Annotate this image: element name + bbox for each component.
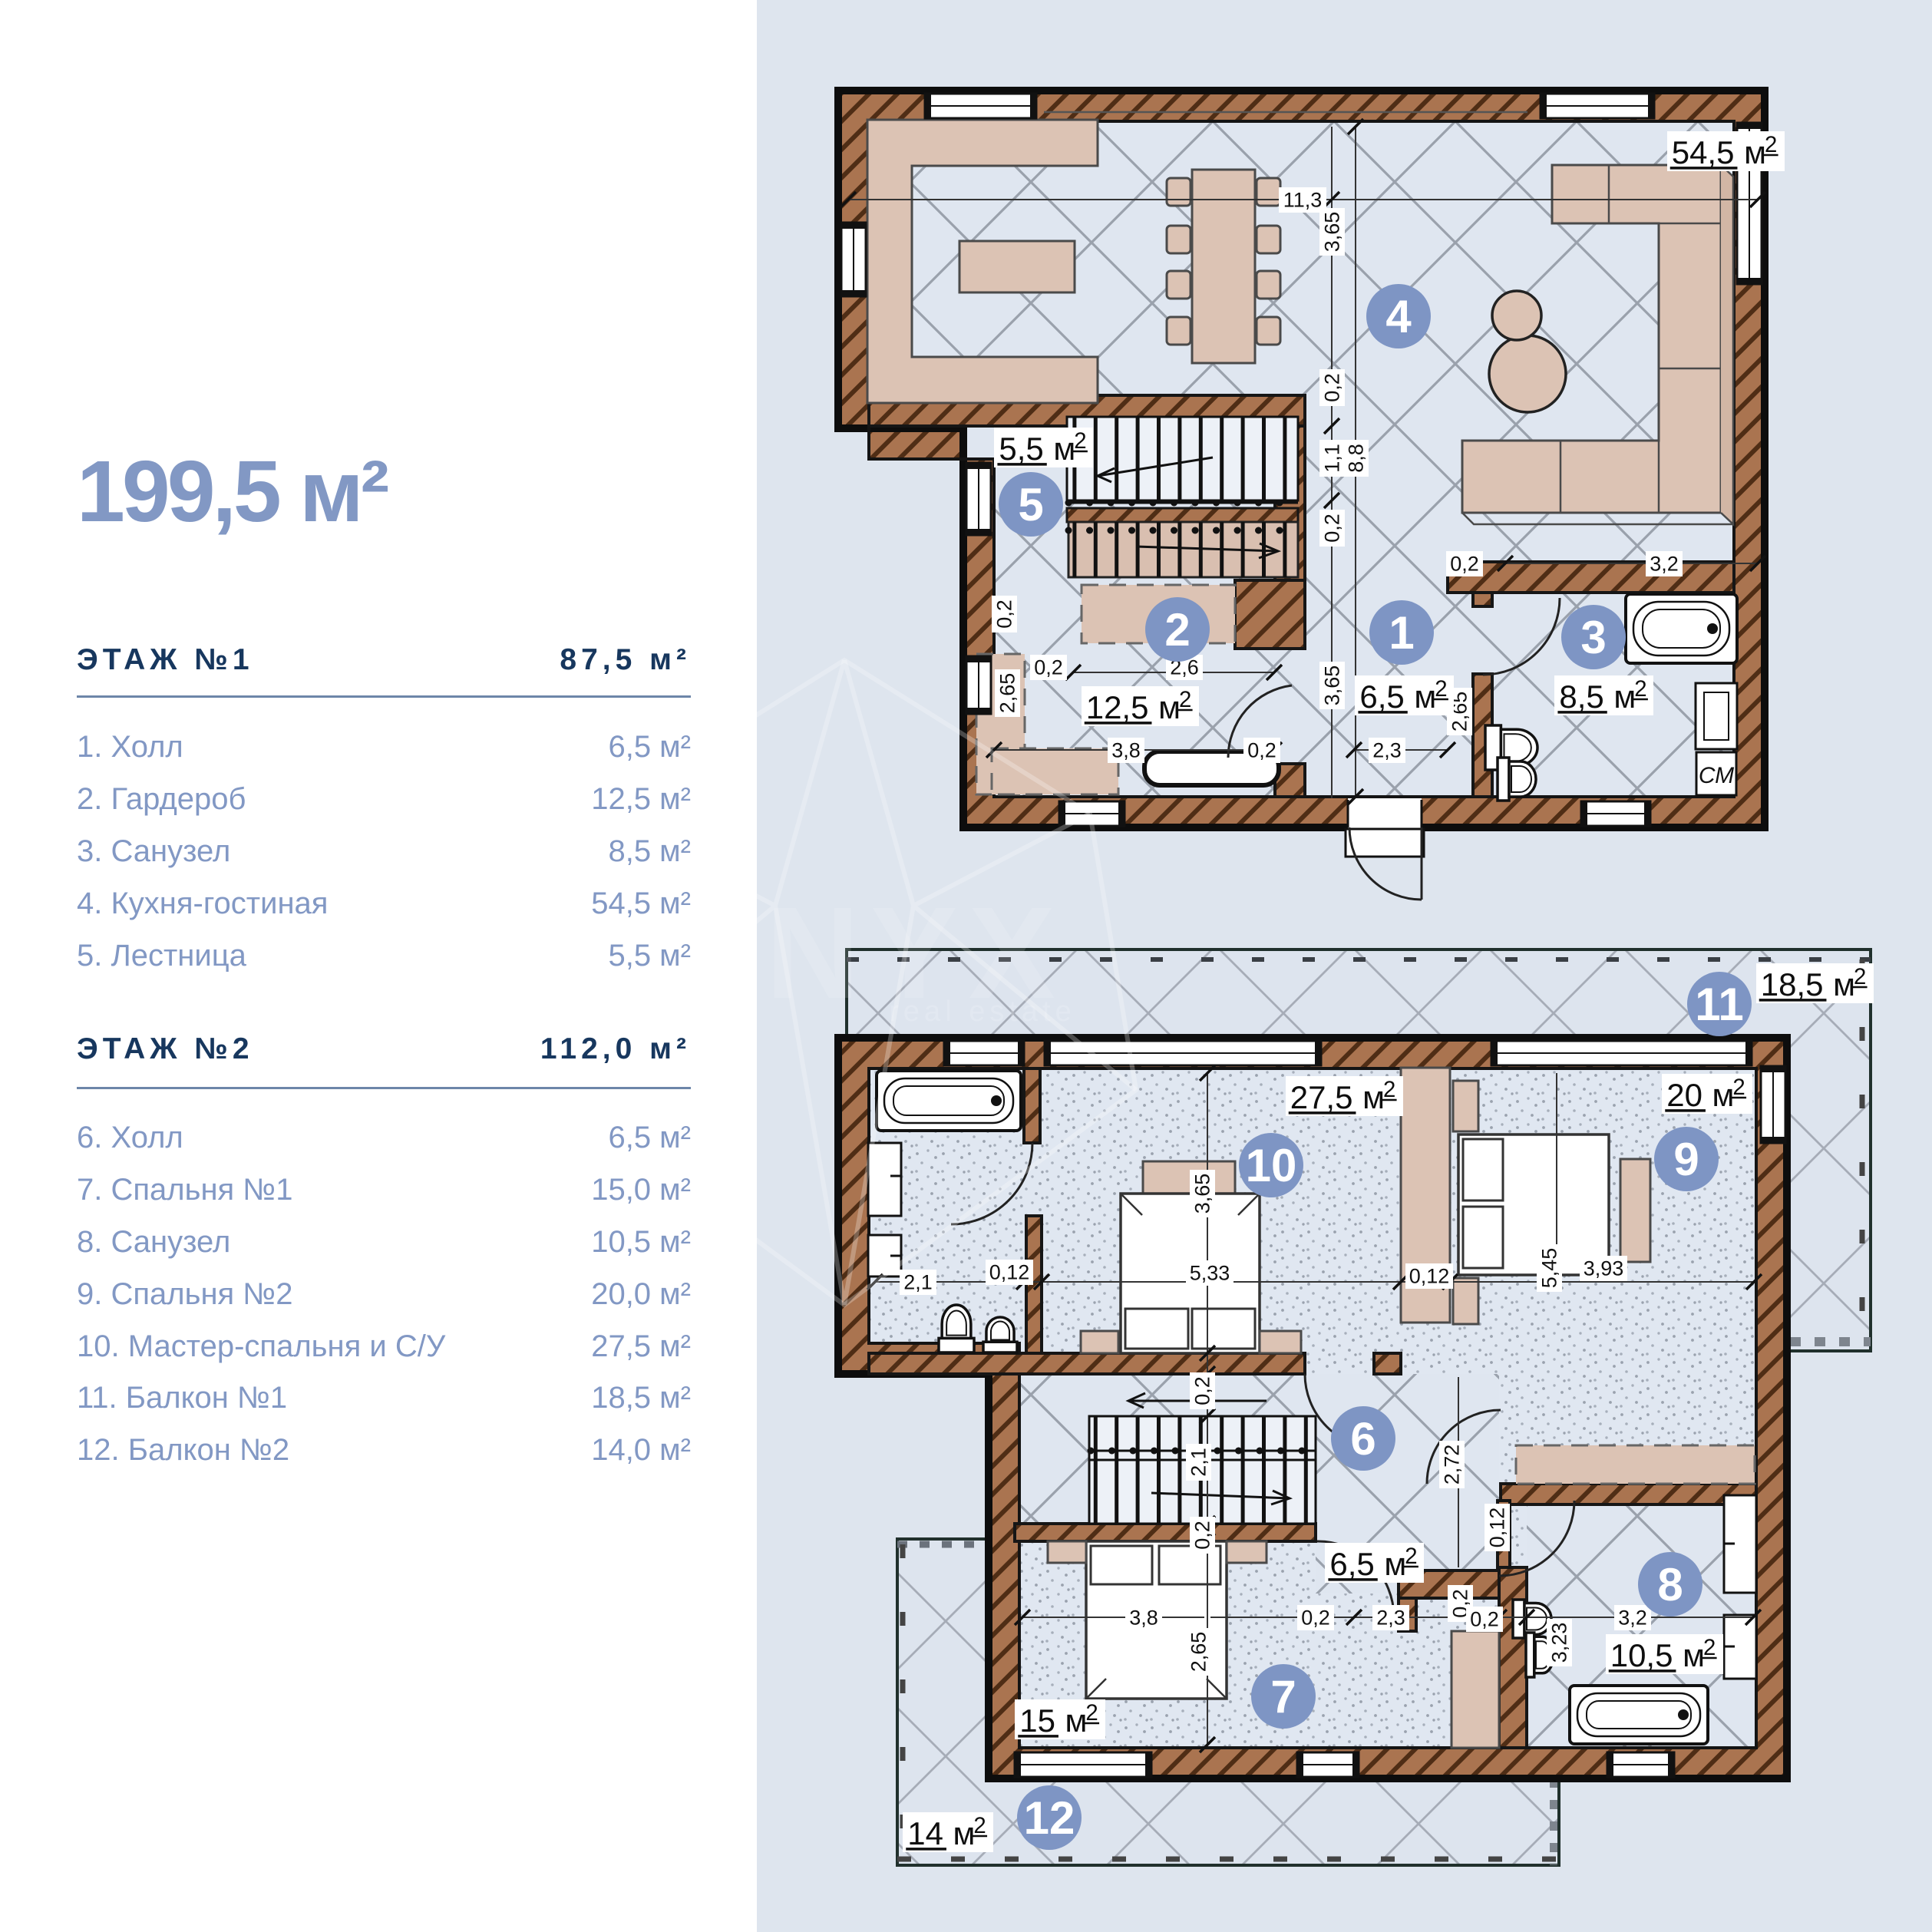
svg-text:0,2: 0,2 bbox=[1247, 739, 1276, 762]
svg-text:5: 5 bbox=[1018, 479, 1043, 530]
svg-text:6: 6 bbox=[1350, 1413, 1376, 1465]
svg-text:3,23: 3,23 bbox=[1548, 1623, 1571, 1663]
svg-text:8,5: 8,5 bbox=[1559, 679, 1603, 715]
svg-text:10,5: 10,5 bbox=[1610, 1637, 1673, 1673]
svg-text:4: 4 bbox=[1385, 291, 1412, 342]
svg-text:2,65: 2,65 bbox=[996, 673, 1019, 714]
svg-text:2,72: 2,72 bbox=[1441, 1445, 1464, 1485]
svg-text:м: м bbox=[1744, 134, 1766, 170]
svg-text:3,8: 3,8 bbox=[1129, 1607, 1158, 1630]
svg-text:2: 2 bbox=[1383, 1077, 1395, 1102]
svg-text:0,2: 0,2 bbox=[1321, 514, 1344, 543]
svg-text:0,2: 0,2 bbox=[1321, 373, 1344, 402]
svg-text:9: 9 bbox=[1673, 1134, 1699, 1185]
svg-text:5,5: 5,5 bbox=[999, 431, 1043, 467]
svg-text:0,2: 0,2 bbox=[1470, 1608, 1499, 1631]
svg-text:8: 8 bbox=[1657, 1559, 1683, 1610]
svg-text:11,3: 11,3 bbox=[1283, 189, 1323, 212]
svg-text:27,5: 27,5 bbox=[1290, 1079, 1353, 1115]
svg-text:0,12: 0,12 bbox=[1409, 1265, 1450, 1288]
svg-text:7: 7 bbox=[1270, 1671, 1296, 1722]
svg-text:6,5: 6,5 bbox=[1359, 679, 1404, 715]
svg-text:5,33: 5,33 bbox=[1190, 1262, 1230, 1285]
svg-text:м: м bbox=[1053, 431, 1075, 467]
svg-text:3,8: 3,8 bbox=[1111, 739, 1141, 762]
svg-text:3,65: 3,65 bbox=[1321, 212, 1344, 253]
svg-text:м: м bbox=[1683, 1637, 1705, 1673]
svg-text:5,45: 5,45 bbox=[1538, 1248, 1561, 1289]
svg-text:2: 2 bbox=[1074, 428, 1086, 454]
svg-text:2: 2 bbox=[1732, 1075, 1745, 1100]
svg-text:0,2: 0,2 bbox=[993, 599, 1016, 629]
svg-text:1,1: 1,1 bbox=[1321, 444, 1344, 473]
svg-text:0,12: 0,12 bbox=[1486, 1508, 1509, 1548]
svg-text:м: м bbox=[1158, 689, 1181, 725]
svg-text:м: м bbox=[1065, 1702, 1088, 1739]
svg-text:2,1: 2,1 bbox=[1187, 1448, 1210, 1477]
svg-text:2: 2 bbox=[1634, 676, 1646, 702]
svg-text:м: м bbox=[1362, 1079, 1385, 1115]
svg-text:real estate: real estate bbox=[889, 996, 1075, 1028]
svg-text:12: 12 bbox=[1024, 1792, 1075, 1844]
svg-text:2: 2 bbox=[1164, 604, 1190, 656]
svg-text:3,2: 3,2 bbox=[1618, 1607, 1647, 1630]
svg-text:3: 3 bbox=[1580, 612, 1606, 663]
svg-text:2: 2 bbox=[1854, 964, 1866, 989]
svg-text:2,3: 2,3 bbox=[1372, 739, 1402, 762]
svg-text:0,2: 0,2 bbox=[1191, 1376, 1214, 1405]
svg-text:11: 11 bbox=[1695, 979, 1743, 1030]
svg-text:3,65: 3,65 bbox=[1191, 1174, 1214, 1214]
svg-text:3,65: 3,65 bbox=[1321, 665, 1344, 706]
svg-text:18,5: 18,5 bbox=[1761, 966, 1824, 1002]
svg-text:2: 2 bbox=[1405, 1544, 1417, 1569]
svg-text:10: 10 bbox=[1246, 1140, 1297, 1191]
svg-text:3,93: 3,93 bbox=[1584, 1257, 1624, 1280]
svg-text:м: м bbox=[1414, 679, 1436, 715]
svg-text:12,5: 12,5 bbox=[1086, 689, 1149, 725]
svg-text:3,2: 3,2 bbox=[1650, 553, 1679, 576]
svg-text:2: 2 bbox=[1703, 1635, 1716, 1660]
svg-text:2: 2 bbox=[1435, 676, 1447, 702]
svg-text:2: 2 bbox=[1765, 132, 1777, 157]
svg-text:2: 2 bbox=[1085, 1700, 1098, 1726]
svg-text:2: 2 bbox=[1179, 687, 1191, 712]
svg-text:0,2: 0,2 bbox=[1034, 656, 1063, 679]
svg-text:2,65: 2,65 bbox=[1187, 1632, 1210, 1673]
svg-text:54,5: 54,5 bbox=[1672, 134, 1735, 170]
svg-text:0,2: 0,2 bbox=[1191, 1521, 1214, 1550]
svg-text:2,1: 2,1 bbox=[903, 1271, 933, 1294]
svg-text:1: 1 bbox=[1389, 607, 1414, 659]
svg-text:2,3: 2,3 bbox=[1376, 1607, 1405, 1630]
svg-text:6,5: 6,5 bbox=[1329, 1546, 1374, 1582]
svg-text:м: м bbox=[1712, 1077, 1735, 1113]
svg-text:м: м bbox=[1613, 679, 1636, 715]
svg-text:20: 20 bbox=[1666, 1077, 1702, 1113]
svg-text:2: 2 bbox=[973, 1813, 986, 1838]
svg-text:м: м bbox=[953, 1815, 976, 1851]
svg-text:СМ: СМ bbox=[1699, 763, 1734, 788]
svg-text:0,12: 0,12 bbox=[989, 1261, 1030, 1284]
svg-text:8,8: 8,8 bbox=[1345, 444, 1368, 473]
svg-text:м: м bbox=[1833, 966, 1855, 1002]
svg-text:15: 15 bbox=[1019, 1702, 1055, 1739]
svg-text:0,2: 0,2 bbox=[1450, 553, 1479, 576]
svg-text:0,2: 0,2 bbox=[1301, 1607, 1330, 1630]
svg-text:14: 14 bbox=[907, 1815, 943, 1851]
svg-text:м: м bbox=[1384, 1546, 1406, 1582]
